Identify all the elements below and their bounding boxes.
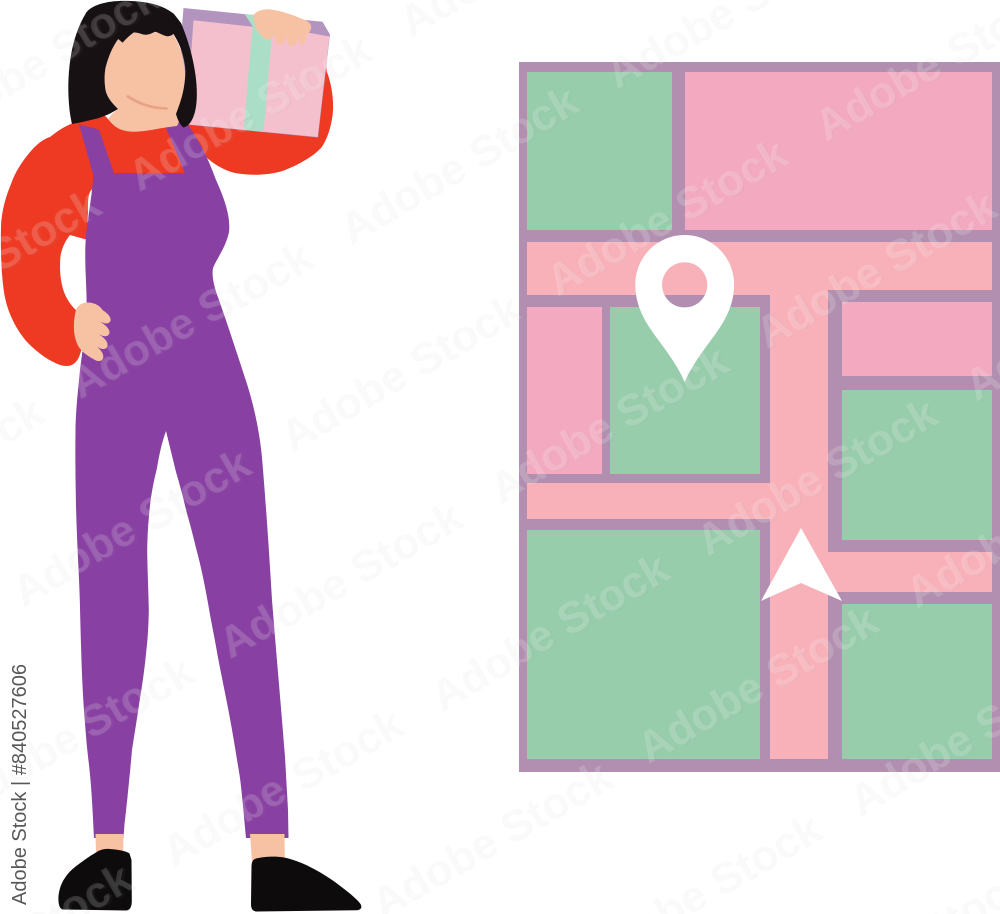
svg-text:Adobe Stock | #840527606: Adobe Stock | #840527606 [9,664,31,905]
